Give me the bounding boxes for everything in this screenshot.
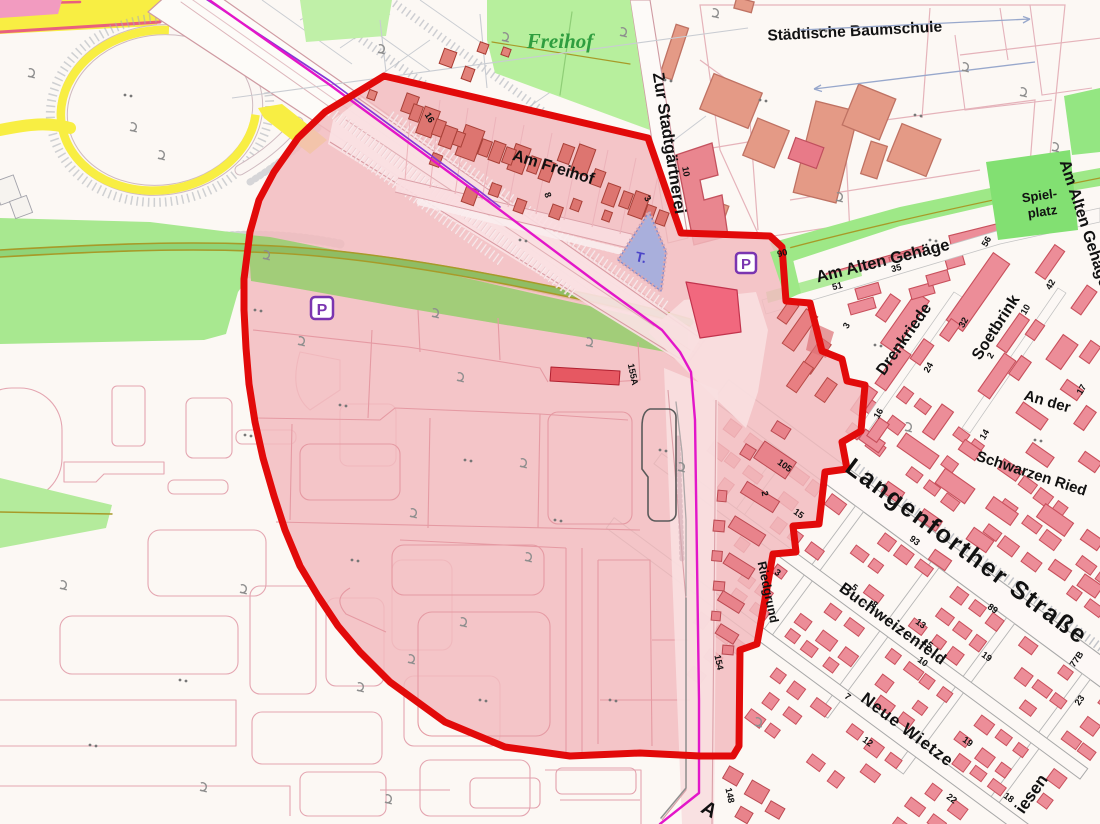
svg-text:P: P — [317, 302, 328, 319]
svg-text:10: 10 — [680, 166, 692, 178]
svg-text:Freihof: Freihof — [526, 29, 596, 53]
svg-text:P: P — [741, 256, 751, 273]
